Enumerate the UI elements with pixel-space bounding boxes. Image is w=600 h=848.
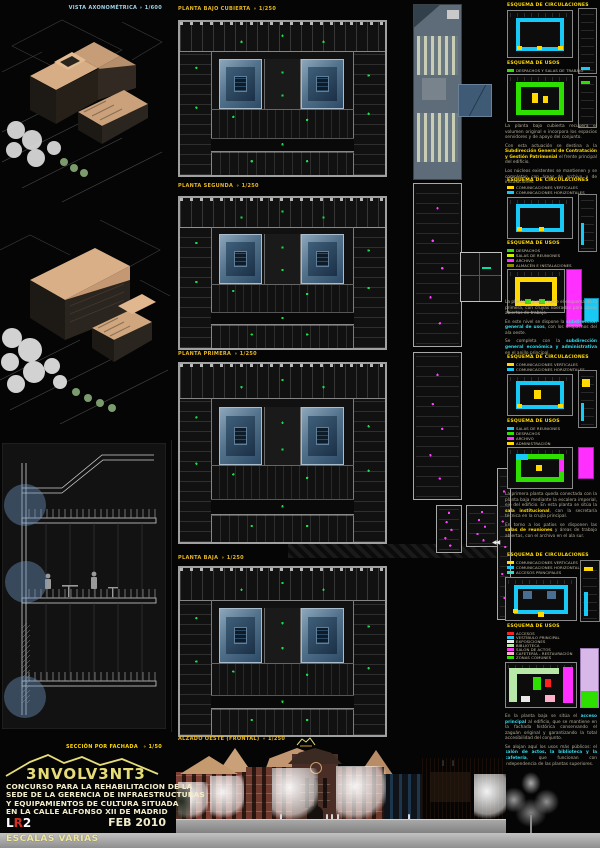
- legend-swatch: [507, 254, 514, 257]
- skylight-stripes: [417, 36, 458, 74]
- wing-plan-upper: [413, 183, 462, 347]
- plan-title-primera: PLANTA PRIMERA∘ 1/250: [178, 351, 257, 357]
- legend-label: Almacén e instalaciones: [516, 263, 572, 268]
- legend-row: Comunicaciones horizontales: [507, 367, 585, 371]
- legend-row: Despachos y salas de trabajo: [507, 68, 583, 72]
- mini-logo-icon: [296, 736, 316, 747]
- legend-swatch: [507, 368, 514, 371]
- legend-label: Despachos y salas de trabajo: [516, 68, 583, 73]
- vertical-core-marker: [537, 46, 542, 50]
- legend-swatch: [507, 249, 514, 252]
- legend-row: Administración: [507, 441, 551, 445]
- courtyard-mini: [523, 591, 532, 599]
- circulation-diagram-3: [507, 374, 573, 416]
- legend-row: Zonas comunes: [507, 655, 551, 659]
- roof-protrusion: [458, 84, 492, 117]
- axonometric-view-2: [0, 210, 170, 425]
- legend-row: Despachos: [507, 431, 540, 435]
- text-run: Se completa con la: [505, 339, 566, 344]
- text-run: PLANTA PRIMERA: [178, 351, 231, 357]
- text-run: L: [6, 816, 14, 830]
- legend-row: Comunicaciones horizontales: [507, 565, 585, 569]
- use-block-cafeteria: [545, 695, 555, 702]
- circulations-title-2: ESQUEMA DE CIRCULACIONES: [507, 178, 589, 183]
- figure: [442, 760, 444, 766]
- legend-swatch: [507, 437, 514, 440]
- text-run: sala institucional: [505, 509, 549, 514]
- paragraph: Se completa con la subdirección general …: [505, 339, 597, 356]
- text-run: 2: [23, 816, 31, 830]
- vertical-core-marker: [513, 609, 518, 613]
- uses-title-3: ESQUEMA DE USOS: [507, 419, 560, 424]
- use-block-auditorium: [563, 667, 574, 702]
- floor-plan-segunda: [178, 196, 387, 350]
- ghost-tree: [474, 774, 506, 824]
- legend-row: Archivo: [507, 436, 534, 440]
- text-run: PLANTA BAJO CUBIERTA: [178, 6, 250, 12]
- text-run: La primera planta queda conectada con la…: [505, 492, 597, 508]
- uses-diagram-3: [507, 447, 573, 489]
- vertical-core-marker: [534, 390, 541, 399]
- text-run: ∘ 1/250: [253, 6, 276, 12]
- legend-row: Comunicaciones horizontales: [507, 190, 585, 194]
- text-run: ∘ 1/250: [221, 555, 244, 561]
- uses-side-strip: [580, 648, 599, 708]
- legend-label: Administración: [516, 441, 551, 446]
- logo-text: 3NVOLV3NT3: [26, 765, 146, 782]
- text-run: ∘ 1/250: [236, 183, 259, 189]
- room-labels: [180, 364, 385, 542]
- skylight-stripes: [417, 113, 458, 162]
- uses-title-1: ESQUEMA DE USOS: [507, 61, 560, 66]
- wing-diagram-1b: [578, 76, 597, 128]
- wing-diagram-1: [578, 8, 597, 74]
- roof-fold-line: [468, 85, 485, 116]
- legend-row: Archivo: [507, 258, 534, 262]
- room-labels: [180, 568, 385, 735]
- use-block-access: [545, 679, 551, 687]
- text-block-4: En la planta baja se sitúa el acceso pri…: [505, 714, 597, 770]
- text-run: salas de reuniones: [505, 528, 553, 533]
- paragraph: En este nivel se dispone la subdirección…: [505, 320, 597, 337]
- legend-swatch: [507, 566, 514, 569]
- text-block-3: La primera planta queda conectada con la…: [505, 492, 597, 543]
- legend-swatch: [507, 442, 514, 445]
- connector-divider: [461, 275, 501, 276]
- legend-row: Comunicaciones verticales: [507, 185, 578, 189]
- circulations-title-3: ESQUEMA DE CIRCULACIONES: [507, 355, 589, 360]
- legend-swatch: [507, 656, 514, 659]
- wing-diagram-2: [578, 194, 597, 252]
- column-divider: [171, 440, 172, 732]
- text-run: ALZADO OESTE (FRONTAL): [178, 736, 259, 742]
- paragraph: En torno a los patios se disponen las sa…: [505, 523, 597, 540]
- use-block: [532, 93, 538, 103]
- legend-row: Comunicaciones verticales: [507, 560, 578, 564]
- use-block-band: [509, 668, 559, 674]
- floor-plan-bajo-cubierta: [178, 20, 387, 177]
- wing-connector: [460, 252, 502, 302]
- use-block: [543, 96, 548, 103]
- west-elevation-drawing: [176, 748, 506, 834]
- vertical-core-marker: [538, 612, 544, 617]
- paragraph: Se alojan aquí los usos más públicos: el…: [505, 745, 597, 767]
- circulation-ring: [514, 585, 567, 614]
- text-run: La planta bajo cubierta recupera el volu…: [505, 124, 597, 140]
- legend-swatch: [507, 259, 514, 262]
- legend-swatch: [507, 571, 514, 574]
- ghost-tree: [336, 766, 386, 824]
- uses-diagram-1: [507, 74, 573, 122]
- circulation-stub: [581, 223, 584, 245]
- courtyard-mini: [547, 591, 556, 599]
- roof-light-box: [447, 10, 459, 19]
- circulation-diagram-4: [505, 577, 577, 621]
- vertical-core-marker: [517, 227, 522, 231]
- text-run: Con esta actuación se destina a la: [505, 144, 597, 149]
- circulations-title-1: ESQUEMA DE CIRCULACIONES: [507, 3, 589, 8]
- axonometric-title: VISTA AXONOMÉTRICA ∘ 1/600: [58, 5, 162, 11]
- connector-divider: [479, 253, 480, 301]
- use-block: [516, 454, 528, 460]
- direction-arrows-icon: ◀◀: [492, 539, 499, 546]
- legend-swatch: [507, 69, 514, 72]
- legend-label: Comunicaciones horizontales: [516, 190, 585, 195]
- paragraph: Con esta actuación se destina a la Subdi…: [505, 144, 597, 166]
- archive-strip-3: [578, 447, 594, 479]
- vertical-core-marker: [558, 404, 563, 408]
- text-run: PLANTA BAJA: [178, 555, 218, 561]
- legend-row: Accesos principales: [507, 570, 561, 574]
- legend-swatch: [507, 561, 514, 564]
- paragraph: La planta segunda repite el esquema de l…: [505, 300, 597, 317]
- text-block-2: La planta segunda repite el esquema de l…: [505, 300, 597, 359]
- text-run: ∘ 1/250: [234, 351, 257, 357]
- competition-text: CONCURSO PARA LA REHABILITACION DE LA SE…: [6, 783, 205, 816]
- circulation-diagram-2: [507, 197, 573, 239]
- legend-swatch: [507, 432, 514, 435]
- plan-title-segunda: PLANTA SEGUNDA∘ 1/250: [178, 183, 259, 189]
- wing-plan-lower: [413, 352, 462, 500]
- text-run: R: [14, 816, 23, 830]
- context-gap-facade: [384, 774, 422, 820]
- room-label-mark: [482, 267, 491, 269]
- paragraph: La primera planta queda conectada con la…: [505, 492, 597, 520]
- competition-line: EN LA CALLE ALFONSO XII DE MADRID: [6, 808, 205, 816]
- circulation-diagram-1: [507, 10, 573, 58]
- sheet-number: LR2: [6, 816, 31, 830]
- legend-row: Salas de reuniones: [507, 253, 560, 257]
- text-run: VISTA AXONOMÉTRICA: [69, 5, 138, 11]
- ghost-tree: [210, 776, 244, 822]
- uses-title-4: ESQUEMA DE USOS: [507, 624, 560, 629]
- use-block: [536, 465, 542, 471]
- elevation-title: ALZADO OESTE (FRONTAL)∘ 1/250: [178, 736, 285, 742]
- plan-title-bajo-cubierta: PLANTA BAJO CUBIERTA∘ 1/250: [178, 6, 276, 12]
- ghost-tree: [272, 768, 318, 824]
- use-block: [559, 460, 564, 472]
- vertical-core-marker: [517, 404, 522, 408]
- legend-row: Comunicaciones verticales: [507, 362, 578, 366]
- uses-ring: [516, 82, 565, 114]
- competition-board: VISTA AXONOMÉTRICA ∘ 1/600: [0, 0, 600, 848]
- logo: 3NVOLV3NT3: [4, 750, 166, 782]
- vertical-core-marker: [539, 227, 544, 231]
- text-run: ∘ 1/250: [262, 736, 285, 742]
- legend-label: Zonas comunes: [516, 655, 551, 660]
- scales-label: ESCALAS VARIAS: [6, 834, 99, 844]
- legend-row: Despachos: [507, 248, 540, 252]
- ground-band: [176, 819, 506, 834]
- uses-title-2: ESQUEMA DE USOS: [507, 241, 560, 246]
- vertical-core-marker: [517, 46, 522, 50]
- text-run: PLANTA SEGUNDA: [178, 183, 233, 189]
- date-label: FEB 2010: [66, 816, 166, 829]
- use-stub-green: [581, 691, 598, 707]
- floor-plan-baja: [178, 566, 387, 737]
- text-run: En la planta baja se sitúa el: [505, 714, 581, 719]
- core-cross-marker: [582, 379, 590, 387]
- circulations-title-4: ESQUEMA DE CIRCULACIONES: [507, 553, 589, 558]
- legend-swatch: [507, 264, 514, 267]
- use-stub: [581, 81, 590, 84]
- modern-opening: [430, 772, 470, 802]
- legend-label: Accesos principales: [516, 570, 561, 575]
- facade-section-drawing: [2, 443, 166, 729]
- room-labels: [180, 22, 385, 175]
- roof-gray-box: [422, 78, 446, 100]
- legend-swatch: [507, 363, 514, 366]
- circulation-stub: [581, 403, 584, 421]
- legend-swatch: [507, 427, 514, 430]
- figure: [452, 760, 454, 766]
- paragraph: La planta bajo cubierta recupera el volu…: [505, 124, 597, 141]
- wing-diagram-4: [580, 560, 600, 622]
- legend-label: Comunicaciones horizontales: [516, 367, 585, 372]
- legend-row: Almacén e instalaciones: [507, 263, 572, 267]
- use-block-common: [533, 677, 541, 690]
- paragraph: En la planta baja se sitúa el acceso pri…: [505, 714, 597, 742]
- text-run: ∘ 1/600: [139, 5, 162, 11]
- text-run: La planta segunda repite el esquema de l…: [505, 300, 597, 316]
- legend-row: Salas de reuniones: [507, 426, 560, 430]
- wing-diagram-3: [578, 370, 597, 428]
- legend-swatch: [507, 191, 514, 194]
- core-cross-marker: [584, 567, 593, 571]
- use-block-expo: [521, 696, 529, 702]
- room-labels: [180, 198, 385, 348]
- uses-diagram-4: [505, 662, 577, 708]
- legend-swatch: [507, 186, 514, 189]
- circulation-stub: [584, 592, 588, 616]
- axonometric-view-1: [2, 12, 168, 208]
- vertical-core-marker: [558, 46, 563, 50]
- floor-plan-primera: [178, 362, 387, 544]
- plan-title-baja: PLANTA BAJA∘ 1/250: [178, 555, 244, 561]
- wing-plan-small-a: [436, 505, 462, 553]
- text-run: En este nivel se dispone la: [505, 320, 566, 325]
